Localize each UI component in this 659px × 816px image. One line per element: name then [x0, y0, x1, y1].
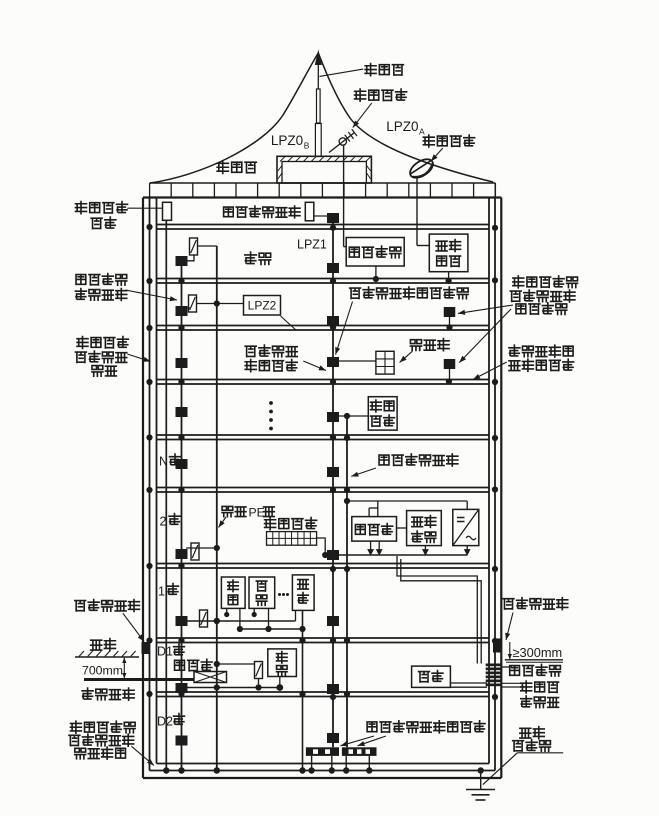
svg-text:LPZ1: LPZ1 [297, 238, 327, 252]
svg-text:N: N [159, 455, 168, 469]
svg-text:LPZ0: LPZ0 [386, 119, 418, 134]
svg-text:PE: PE [249, 506, 265, 520]
svg-text:LPZ0: LPZ0 [271, 133, 303, 148]
svg-text:≥300mm: ≥300mm [513, 645, 563, 660]
svg-text:B: B [304, 141, 310, 151]
svg-text:LPZ2: LPZ2 [248, 299, 277, 313]
svg-text:A: A [419, 127, 425, 137]
svg-text:D2: D2 [157, 715, 173, 729]
svg-text:700mm: 700mm [82, 664, 123, 678]
svg-text:2: 2 [160, 515, 167, 529]
svg-text:D1: D1 [157, 645, 173, 659]
svg-text:1: 1 [158, 585, 165, 599]
